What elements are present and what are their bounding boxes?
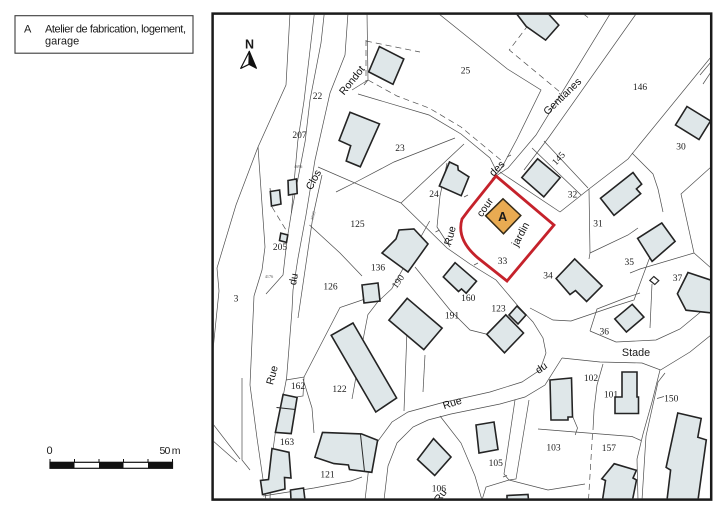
svg-text:A: A	[24, 24, 32, 36]
svg-text:121: 121	[320, 471, 335, 481]
svg-text:Rue: Rue	[264, 364, 281, 386]
svg-text:122: 122	[332, 385, 347, 395]
svg-text:N: N	[245, 38, 254, 52]
svg-text:du: du	[287, 272, 301, 286]
svg-text:101: 101	[604, 391, 619, 401]
svg-text:191: 191	[445, 312, 460, 322]
svg-text:du: du	[533, 360, 550, 377]
svg-text:150: 150	[664, 394, 679, 404]
svg-text:0: 0	[47, 445, 53, 457]
svg-text:34: 34	[543, 272, 553, 282]
svg-text:A: A	[498, 210, 507, 224]
svg-text:123: 123	[491, 305, 506, 315]
svg-text:136: 136	[371, 264, 386, 274]
svg-text:146: 146	[633, 83, 648, 93]
svg-text:Rondot: Rondot	[337, 64, 368, 98]
svg-text:163: 163	[280, 438, 295, 448]
svg-text:30: 30	[676, 143, 686, 153]
svg-text:5033: 5033	[310, 211, 317, 220]
svg-text:190: 190	[391, 273, 408, 291]
svg-text:103: 103	[546, 444, 561, 454]
svg-text:102: 102	[584, 374, 599, 384]
svg-text:207: 207	[292, 131, 307, 141]
svg-text:162: 162	[291, 382, 306, 392]
svg-text:Rue: Rue	[442, 225, 459, 247]
svg-text:50 m: 50 m	[160, 445, 181, 457]
svg-text:24: 24	[429, 190, 439, 200]
svg-text:145: 145	[551, 150, 568, 167]
svg-text:4696: 4696	[294, 164, 302, 169]
svg-text:35: 35	[625, 258, 635, 268]
svg-text:31: 31	[593, 220, 603, 230]
svg-text:125: 125	[350, 220, 365, 230]
svg-text:157: 157	[602, 444, 617, 454]
svg-text:32: 32	[568, 191, 578, 201]
svg-text:garage: garage	[45, 36, 79, 48]
svg-text:23: 23	[395, 144, 405, 154]
svg-text:160: 160	[461, 294, 476, 304]
svg-text:37: 37	[673, 274, 683, 284]
svg-text:25: 25	[461, 67, 471, 77]
svg-text:Atelier de fabrication, logeme: Atelier de fabrication, logement,	[45, 24, 186, 36]
svg-text:105: 105	[489, 459, 504, 469]
svg-text:36: 36	[600, 328, 610, 338]
svg-text:4176: 4176	[265, 274, 273, 279]
svg-text:22: 22	[313, 92, 323, 102]
svg-text:des: des	[487, 158, 507, 178]
svg-text:205: 205	[273, 243, 288, 253]
svg-text:Stade: Stade	[622, 347, 650, 359]
svg-text:126: 126	[323, 283, 338, 293]
svg-text:3: 3	[234, 295, 239, 305]
svg-text:33: 33	[498, 257, 508, 267]
svg-text:Rue: Rue	[441, 395, 463, 412]
